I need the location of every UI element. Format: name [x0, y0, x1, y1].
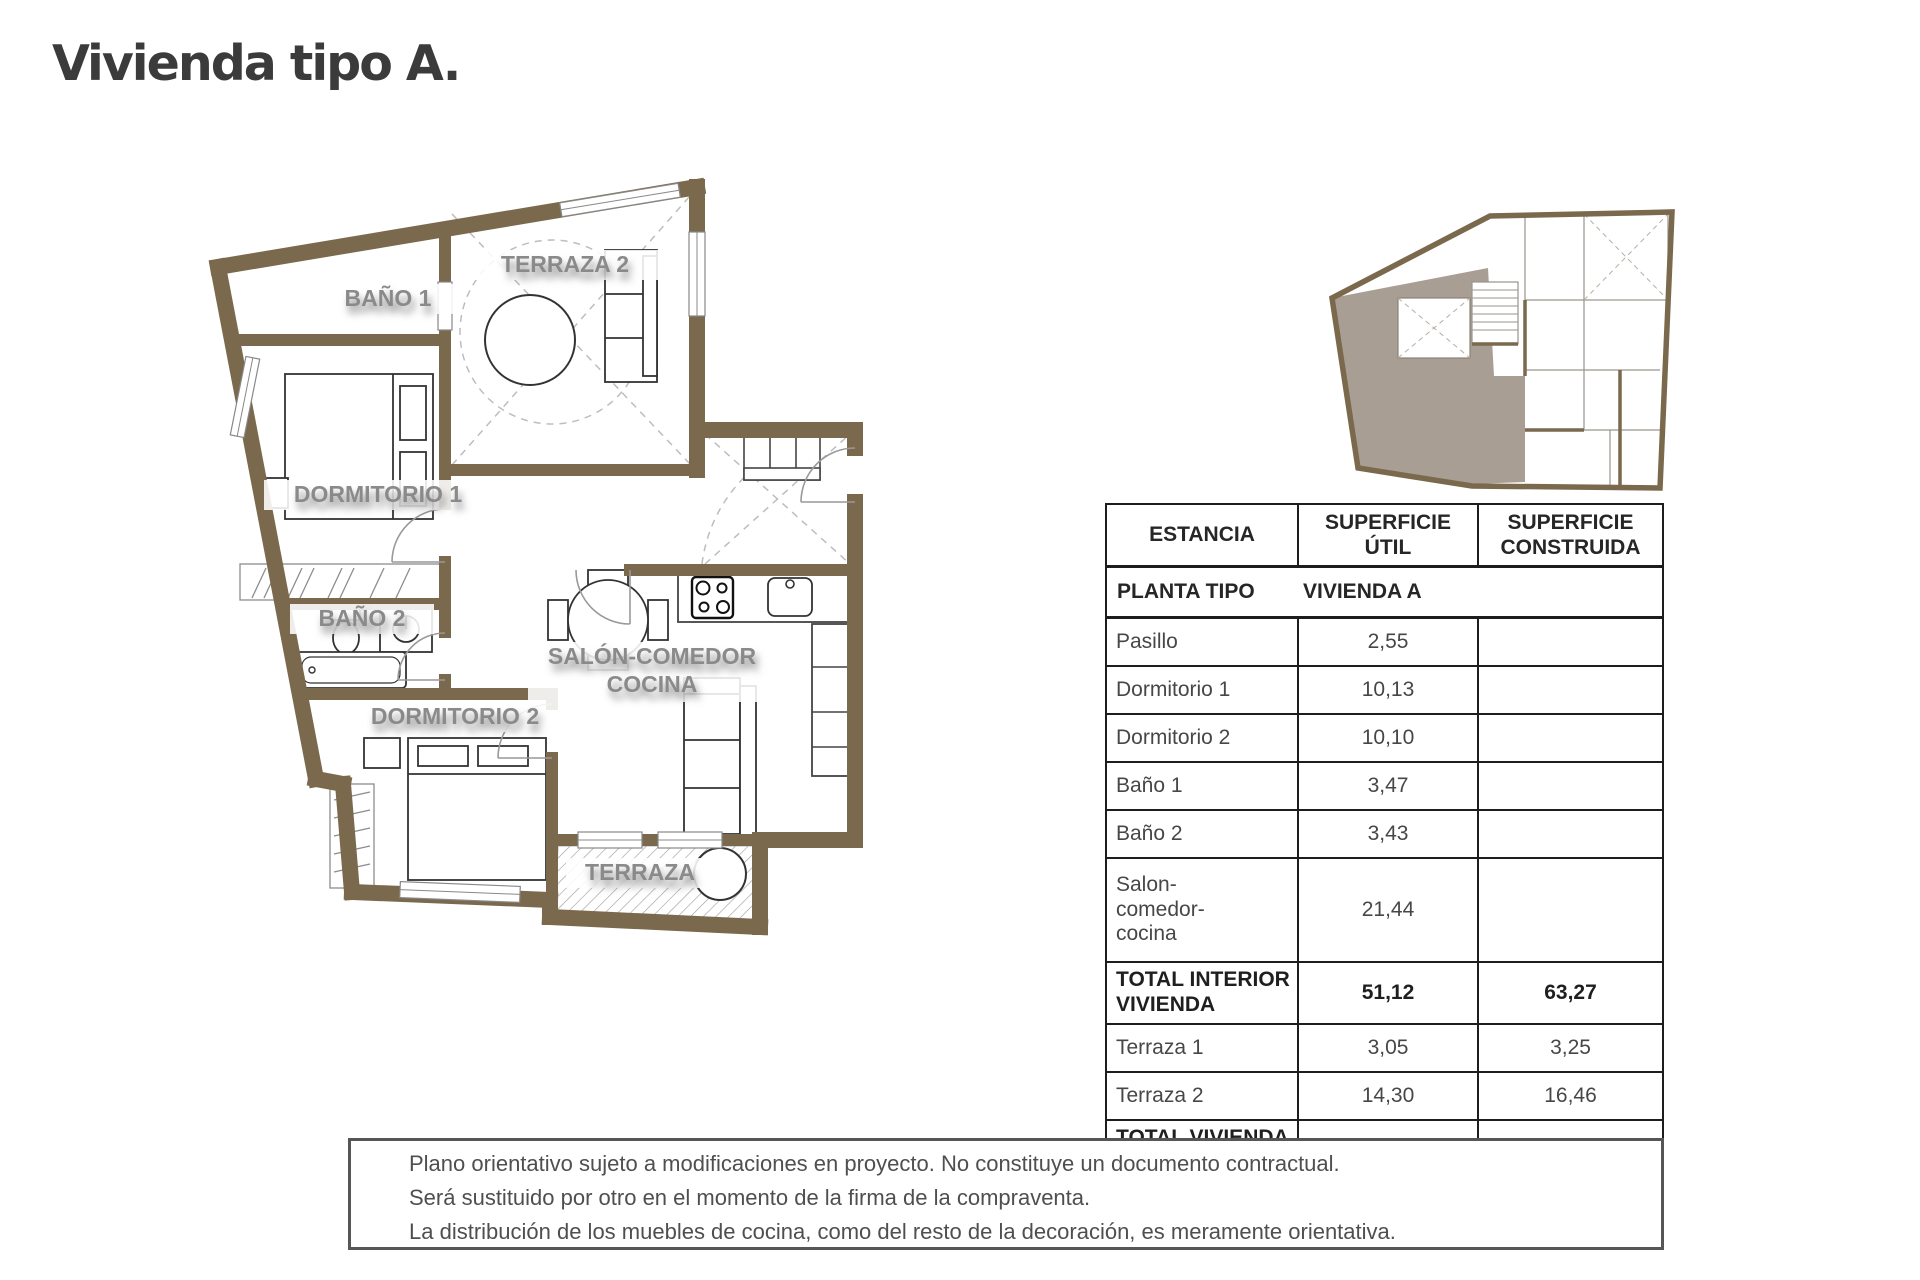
row-terraza2-construida: 16,46: [1478, 1072, 1663, 1120]
sofa-icon: [684, 678, 756, 840]
row-bano1-construida: [1478, 762, 1663, 810]
table-row: Terraza 1 3,05 3,25: [1106, 1024, 1663, 1072]
room-label-terraza2: TERRAZA 2: [501, 251, 629, 277]
key-plan: [1320, 170, 1680, 510]
row-terraza1-construida: 3,25: [1478, 1024, 1663, 1072]
row-pasillo-construida: [1478, 618, 1663, 667]
floor-plan: TERRAZA 2 BAÑO 1 DORMITORIO 1 BAÑO 2 DOR…: [200, 172, 880, 942]
key-plan-patio-left: [1398, 298, 1470, 358]
room-label-bano2: BAÑO 2: [319, 604, 406, 631]
page-title: Vivienda tipo A.: [52, 35, 459, 92]
planta-tipo-label: PLANTA TIPO: [1108, 580, 1303, 604]
room-label-salon-line2: COCINA: [607, 671, 698, 697]
areas-table: ESTANCIA SUPERFICIE ÚTIL SUPERFICIE CONS…: [1105, 503, 1664, 1183]
table-row: Pasillo 2,55: [1106, 618, 1663, 667]
room-label-dormitorio1: DORMITORIO 1: [294, 481, 462, 507]
row-dormitorio1-name: Dormitorio 1: [1106, 666, 1298, 714]
disclaimer-line: Será sustituido por otro en el momento d…: [409, 1181, 1651, 1215]
row-dormitorio1-util: 10,13: [1298, 666, 1478, 714]
room-label-bano1: BAÑO 1: [345, 284, 432, 311]
row-bano1-util: 3,47: [1298, 762, 1478, 810]
key-plan-patio-right: [1584, 214, 1668, 300]
row-bano2-name: Baño 2: [1106, 810, 1298, 858]
room-label-terraza: TERRAZA: [585, 859, 695, 885]
table-row: Dormitorio 2 10,10: [1106, 714, 1663, 762]
key-plan-drawing: [1320, 170, 1680, 510]
row-salon-name: Salon- comedor- cocina: [1106, 858, 1298, 962]
kitchen-sink-icon: [768, 578, 812, 616]
row-total-interior-util: 51,12: [1298, 962, 1478, 1024]
row-pasillo-name: Pasillo: [1106, 618, 1298, 667]
disclaimer-line: Plano orientativo sujeto a modificacione…: [409, 1147, 1651, 1181]
col-header-superficie-util: SUPERFICIE ÚTIL: [1298, 504, 1478, 567]
bed2-icon: [364, 738, 546, 880]
row-salon-util: 21,44: [1298, 858, 1478, 962]
row-total-interior-construida: 63,27: [1478, 962, 1663, 1024]
terraza2-round-table-icon: [485, 295, 575, 385]
row-total-interior-name: TOTAL INTERIOR VIVIENDA: [1106, 962, 1298, 1024]
col-header-superficie-construida: SUPERFICIE CONSTRUIDA: [1478, 504, 1663, 567]
row-dormitorio2-util: 10,10: [1298, 714, 1478, 762]
table-row: Baño 2 3,43: [1106, 810, 1663, 858]
disclaimer-line: La distribución de los muebles de cocina…: [409, 1215, 1651, 1249]
row-salon-construida: [1478, 858, 1663, 962]
table-row: Baño 1 3,47: [1106, 762, 1663, 810]
floor-plan-drawing: TERRAZA 2 BAÑO 1 DORMITORIO 1 BAÑO 2 DOR…: [200, 172, 880, 942]
row-pasillo-util: 2,55: [1298, 618, 1478, 667]
row-bano2-util: 3,43: [1298, 810, 1478, 858]
row-dormitorio2-construida: [1478, 714, 1663, 762]
row-bano1-name: Baño 1: [1106, 762, 1298, 810]
row-terraza2-util: 14,30: [1298, 1072, 1478, 1120]
planta-tipo-row: PLANTA TIPO VIVIENDA A: [1106, 567, 1663, 618]
row-dormitorio2-name: Dormitorio 2: [1106, 714, 1298, 762]
stove-icon: [692, 577, 733, 618]
col-header-estancia: ESTANCIA: [1106, 504, 1298, 567]
table-row: Dormitorio 1 10,13: [1106, 666, 1663, 714]
table-row-total-interior: TOTAL INTERIOR VIVIENDA 51,12 63,27: [1106, 962, 1663, 1024]
table-row: Salon- comedor- cocina 21,44: [1106, 858, 1663, 962]
row-terraza1-util: 3,05: [1298, 1024, 1478, 1072]
vivienda-a-label: VIVIENDA A: [1303, 580, 1422, 604]
page: { "title": "Vivienda tipo A.", "plan": {…: [0, 0, 1920, 1280]
row-terraza1-name: Terraza 1: [1106, 1024, 1298, 1072]
room-label-salon-line1: SALÓN-COMEDOR: [548, 642, 757, 669]
table-row: Terraza 2 14,30 16,46: [1106, 1072, 1663, 1120]
disclaimer-box: Plano orientativo sujeto a modificacione…: [348, 1138, 1664, 1250]
row-terraza2-name: Terraza 2: [1106, 1072, 1298, 1120]
row-bano2-construida: [1478, 810, 1663, 858]
key-plan-stairs: [1472, 282, 1518, 344]
room-label-dormitorio2: DORMITORIO 2: [371, 703, 539, 729]
row-dormitorio1-construida: [1478, 666, 1663, 714]
